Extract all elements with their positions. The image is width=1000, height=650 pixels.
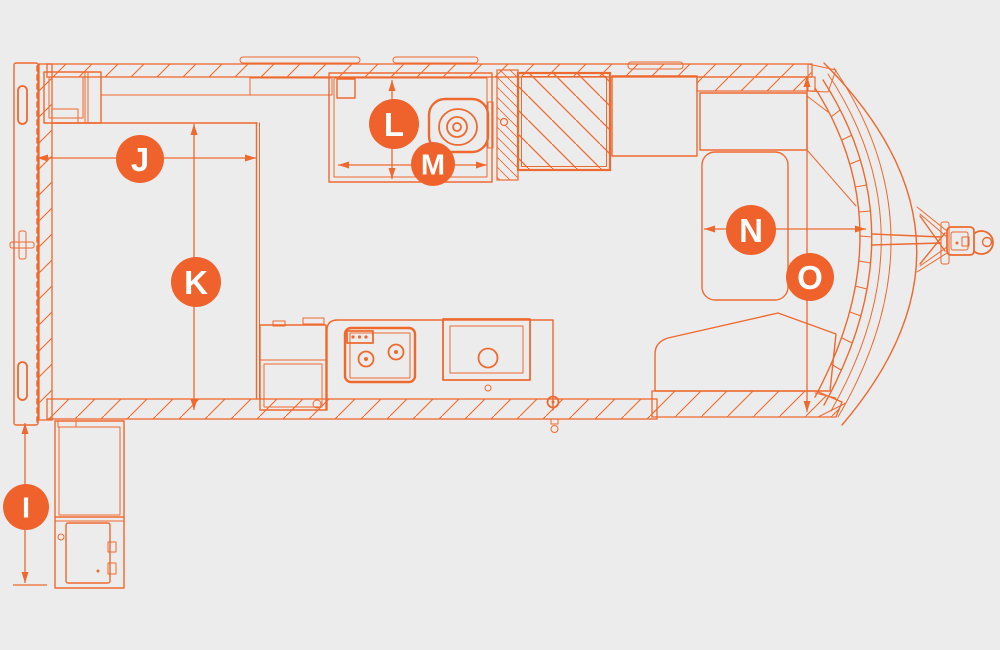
rear-wall-outer-panel <box>10 63 38 425</box>
marker-label-O: O <box>797 259 823 296</box>
rear-light-top <box>18 86 27 124</box>
marker-label-N: N <box>739 212 763 249</box>
hitch-coupling-icon <box>947 227 993 255</box>
top-wall <box>47 64 812 77</box>
step-door-panel <box>66 523 110 583</box>
marker-label-J: J <box>131 141 149 178</box>
overhead-locker-box <box>250 78 332 95</box>
caravan-shell <box>10 57 842 425</box>
marker-label-I: I <box>22 492 30 524</box>
fridge <box>518 73 610 170</box>
floorplan-canvas: I J K L M N O <box>0 0 1000 650</box>
lounge-seat <box>655 313 836 391</box>
marker-label-M: M <box>421 149 445 181</box>
bathroom-vanity <box>337 79 355 98</box>
stove-icon <box>345 328 415 382</box>
marker-label-K: K <box>184 264 208 301</box>
front-cabinet <box>612 76 697 156</box>
entry-step <box>55 421 124 588</box>
marker-badge-I: I <box>3 484 49 530</box>
rear-wall <box>39 64 52 420</box>
caravan-floorplan-svg: I J K L M N O <box>0 0 1000 650</box>
front-overhead-band <box>697 77 815 91</box>
bed-head <box>700 93 807 150</box>
rear-bedroom <box>44 72 332 399</box>
rear-light-bottom <box>18 362 27 400</box>
dimension-O <box>804 76 811 412</box>
marker-badge-J: J <box>116 135 164 183</box>
marker-label-L: L <box>384 106 404 143</box>
marker-badge-O: O <box>786 253 834 301</box>
dimension-markers: I J K L M N O <box>3 99 834 530</box>
marker-badge-N: N <box>726 205 776 255</box>
sink-icon <box>443 319 530 391</box>
marker-badge-K: K <box>171 257 221 307</box>
lounge-base <box>652 391 842 417</box>
marker-badge-M: M <box>411 142 455 186</box>
door-wall-strip <box>497 70 518 180</box>
marker-badge-L: L <box>369 99 419 149</box>
kitchen-cabinet <box>260 318 326 410</box>
bottom-wall <box>47 399 657 419</box>
front-curve <box>808 63 993 425</box>
door-knob <box>501 119 508 126</box>
